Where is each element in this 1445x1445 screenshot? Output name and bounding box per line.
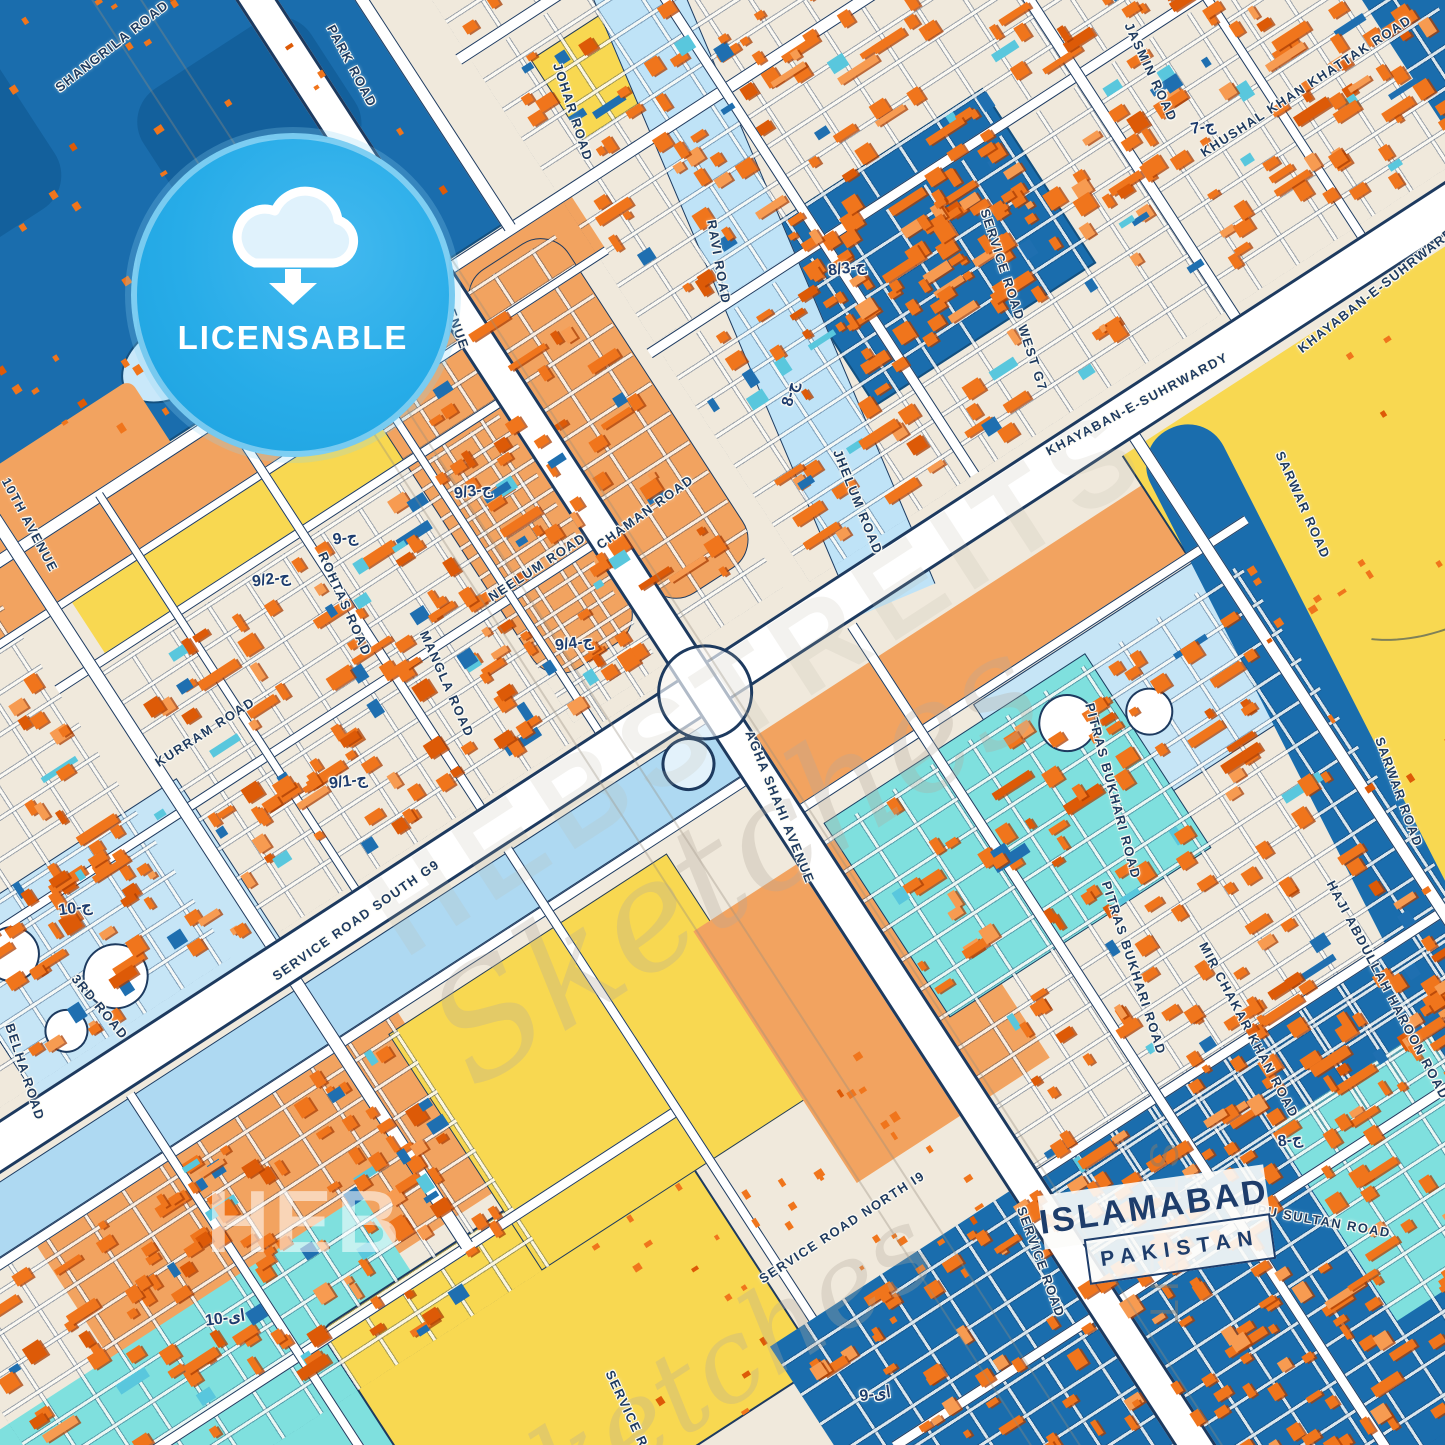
sector-label: ج-9 [331, 526, 358, 549]
sector-label: ج-7 [1189, 115, 1217, 139]
licensable-badge[interactable]: LICENSABLE [131, 133, 455, 457]
badge-label: LICENSABLE [178, 319, 409, 357]
map-poster: HEBSTREITSSketchesSketchesHEBSTREITSHANG… [0, 0, 1445, 1445]
cloud-download-icon [208, 177, 378, 305]
sector-label: ای-9 [858, 1382, 892, 1406]
sector-label: ج-8 [1276, 1128, 1303, 1151]
